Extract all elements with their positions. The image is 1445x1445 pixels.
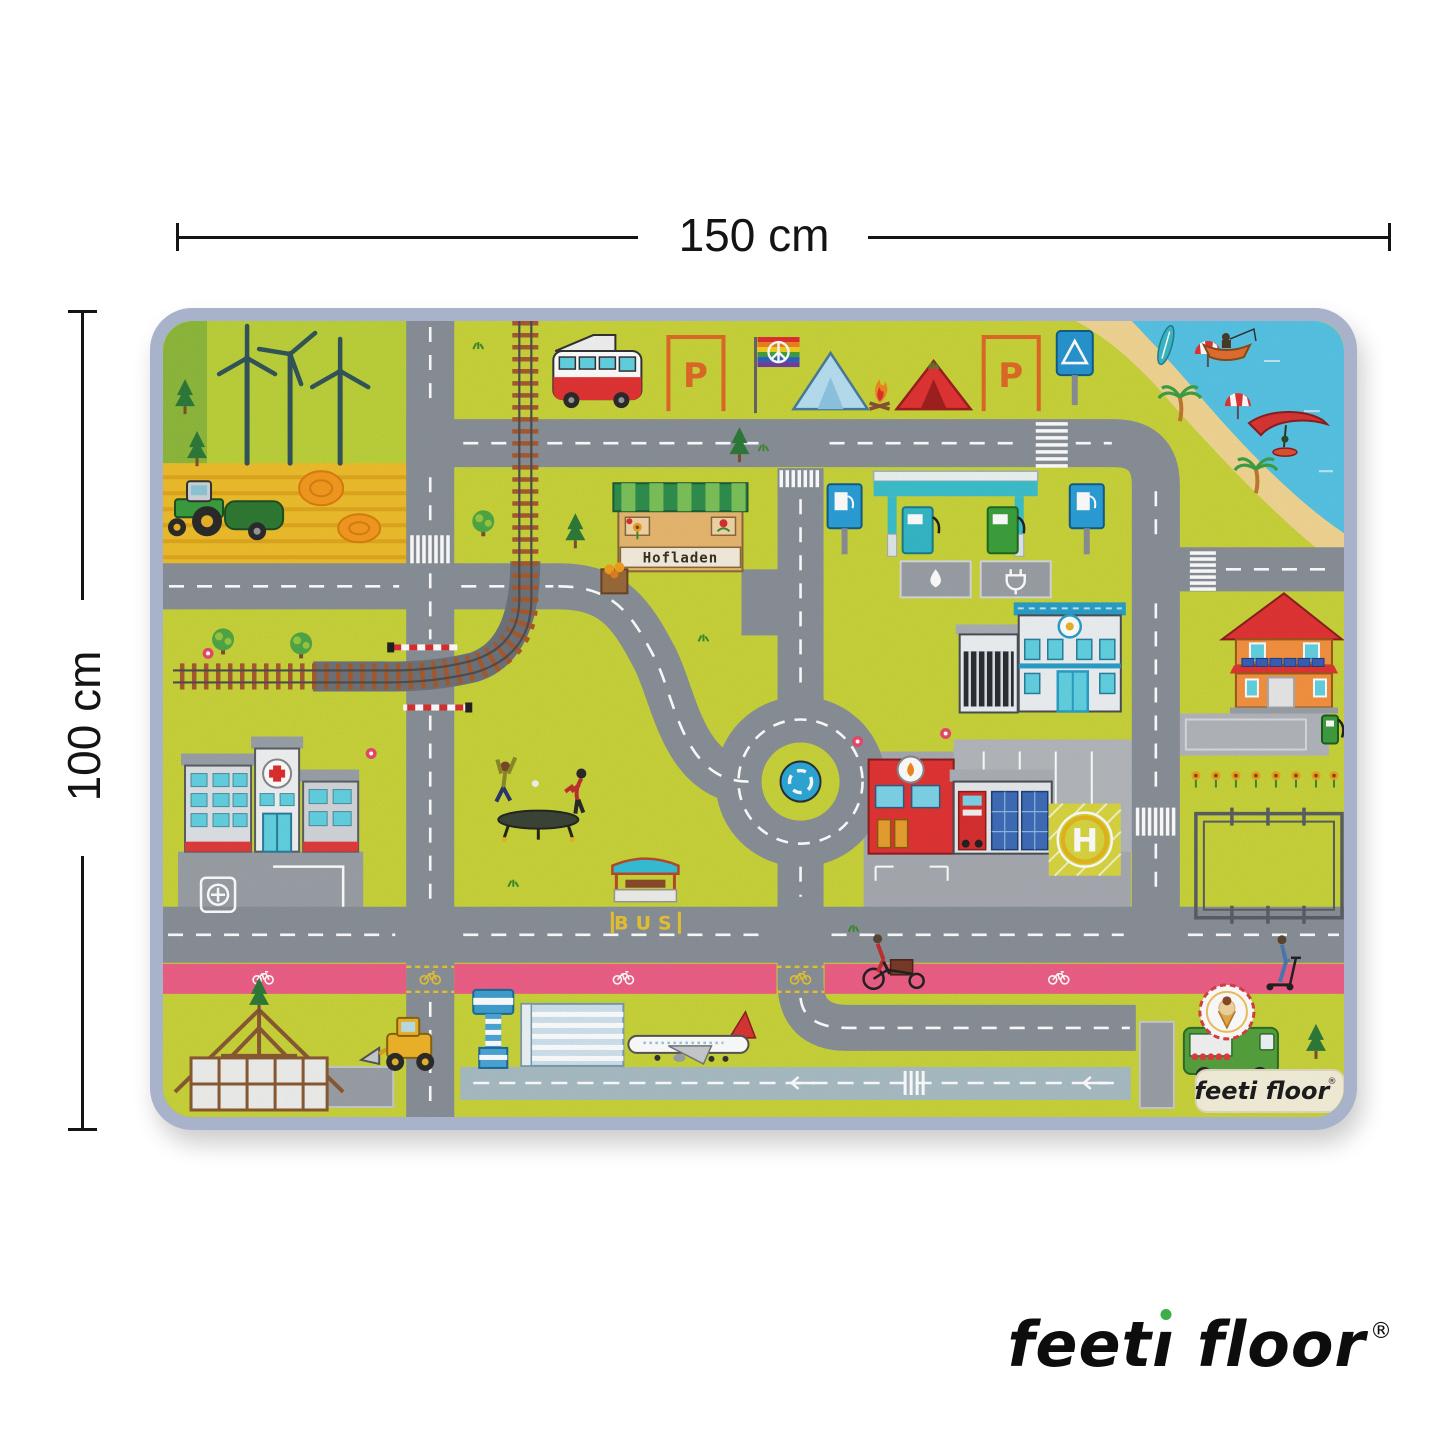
- carpet-texture-overlay: [163, 321, 1344, 1117]
- dimension-tick-left-top: [68, 310, 97, 313]
- brand-logo-pre: feet: [1007, 1308, 1152, 1381]
- brand-logo: feetı floor®: [1007, 1308, 1393, 1381]
- dimension-tick-top-right: [1388, 223, 1391, 251]
- dimension-line-top-left: [178, 236, 638, 239]
- play-rug: P P: [150, 308, 1357, 1130]
- dimension-tick-top-left: [176, 223, 179, 251]
- width-dimension-label: 150 cm: [640, 208, 868, 262]
- product-image: 150 cm 100 cm: [0, 0, 1445, 1445]
- dimension-tick-left-bottom: [68, 1128, 97, 1131]
- dimension-line-top-right: [868, 236, 1390, 239]
- brand-logo-i: ı: [1152, 1308, 1174, 1381]
- brand-logo-post: floor: [1174, 1308, 1366, 1381]
- brand-logo-green-dot: [1160, 1309, 1171, 1320]
- play-rug-illustration: P P: [163, 321, 1344, 1117]
- dimension-line-left-lower: [81, 856, 84, 1130]
- height-dimension-label: 100 cm: [57, 651, 111, 802]
- brand-logo-registered: ®: [1370, 1319, 1393, 1344]
- dimension-line-left-upper: [81, 312, 84, 600]
